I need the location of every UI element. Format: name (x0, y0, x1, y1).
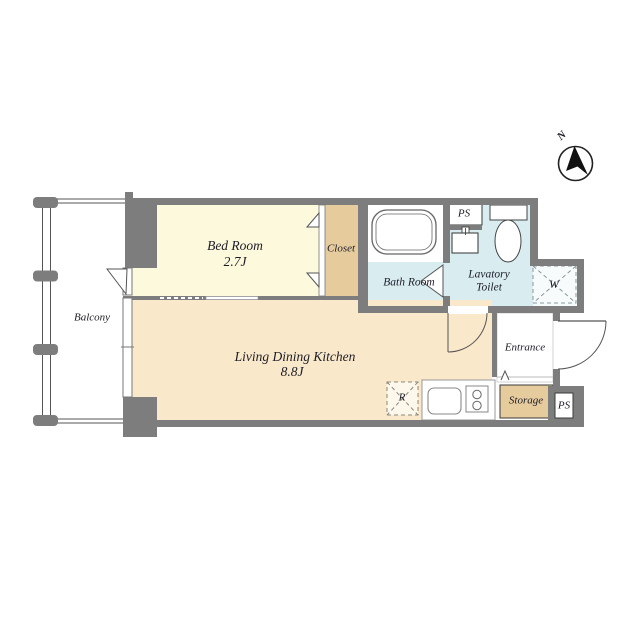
wall-alcove-top (530, 259, 584, 266)
lavatory-door-threshold (448, 306, 488, 314)
railing-post-2 (33, 271, 58, 282)
storage-label: Storage (509, 395, 543, 408)
lavatory-label-line2: Toilet (476, 281, 502, 294)
railing-post-4 (33, 415, 58, 426)
pipe-space-bottom-label: PS (558, 400, 570, 413)
railing-post-1 (33, 197, 58, 208)
lavatory-label-line1: Lavatory (468, 268, 510, 281)
stove-burner-2 (473, 401, 481, 409)
front-door-swing-arc (558, 321, 606, 369)
wall-bath-lavatory-lower (443, 296, 450, 306)
refrigerator-space-label: R (399, 392, 406, 405)
wall-top (125, 198, 538, 205)
stove-burner-1 (473, 390, 481, 398)
wall-bottom (123, 420, 584, 427)
wall-south-wet-left (358, 306, 448, 313)
wall-top-left-pillar (125, 192, 133, 199)
closet-label: Closet (327, 243, 355, 256)
wall-left-lower-block (123, 397, 157, 437)
sink-icon (452, 233, 478, 253)
toilet-bowl-icon (495, 220, 521, 262)
railing-post-3 (33, 344, 58, 355)
wall-closet-bath (358, 205, 368, 306)
sliding-partition-panel (206, 297, 258, 300)
kitchen-sink-icon (428, 388, 461, 414)
wall-alcove-right (577, 259, 584, 313)
bedroom-balcony-door-swing (107, 269, 127, 294)
toilet-tank-icon (490, 205, 527, 220)
compass (559, 146, 593, 181)
bathroom-label: Bath Room (383, 276, 434, 289)
wall-entrance-right-stub-top (553, 313, 560, 321)
ldk-area-label: 8.8J (281, 364, 304, 380)
bedroom-label: Bed Room (207, 238, 263, 254)
bedroom-area-label: 2.7J (224, 254, 247, 270)
bathtub-icon (372, 210, 436, 254)
wall-bath-lavatory-upper (443, 205, 450, 263)
balcony-label: Balcony (74, 312, 110, 325)
ldk-label: Living Dining Kitchen (235, 349, 356, 365)
bath-door-gap (443, 263, 450, 296)
wall-south-wet-right (488, 306, 584, 313)
wall-entrance-left (492, 313, 497, 377)
floor-plan-page: Bed Room 2.7J Closet Bath Room PS Lavato… (0, 0, 640, 640)
closet-door-track (319, 205, 325, 296)
wall-right-upper (530, 198, 538, 266)
wall-left-upper-block (125, 198, 157, 268)
entrance-label: Entrance (505, 342, 545, 355)
washer-space-label: W (549, 278, 559, 292)
pipe-space-top-label: PS (458, 208, 470, 221)
